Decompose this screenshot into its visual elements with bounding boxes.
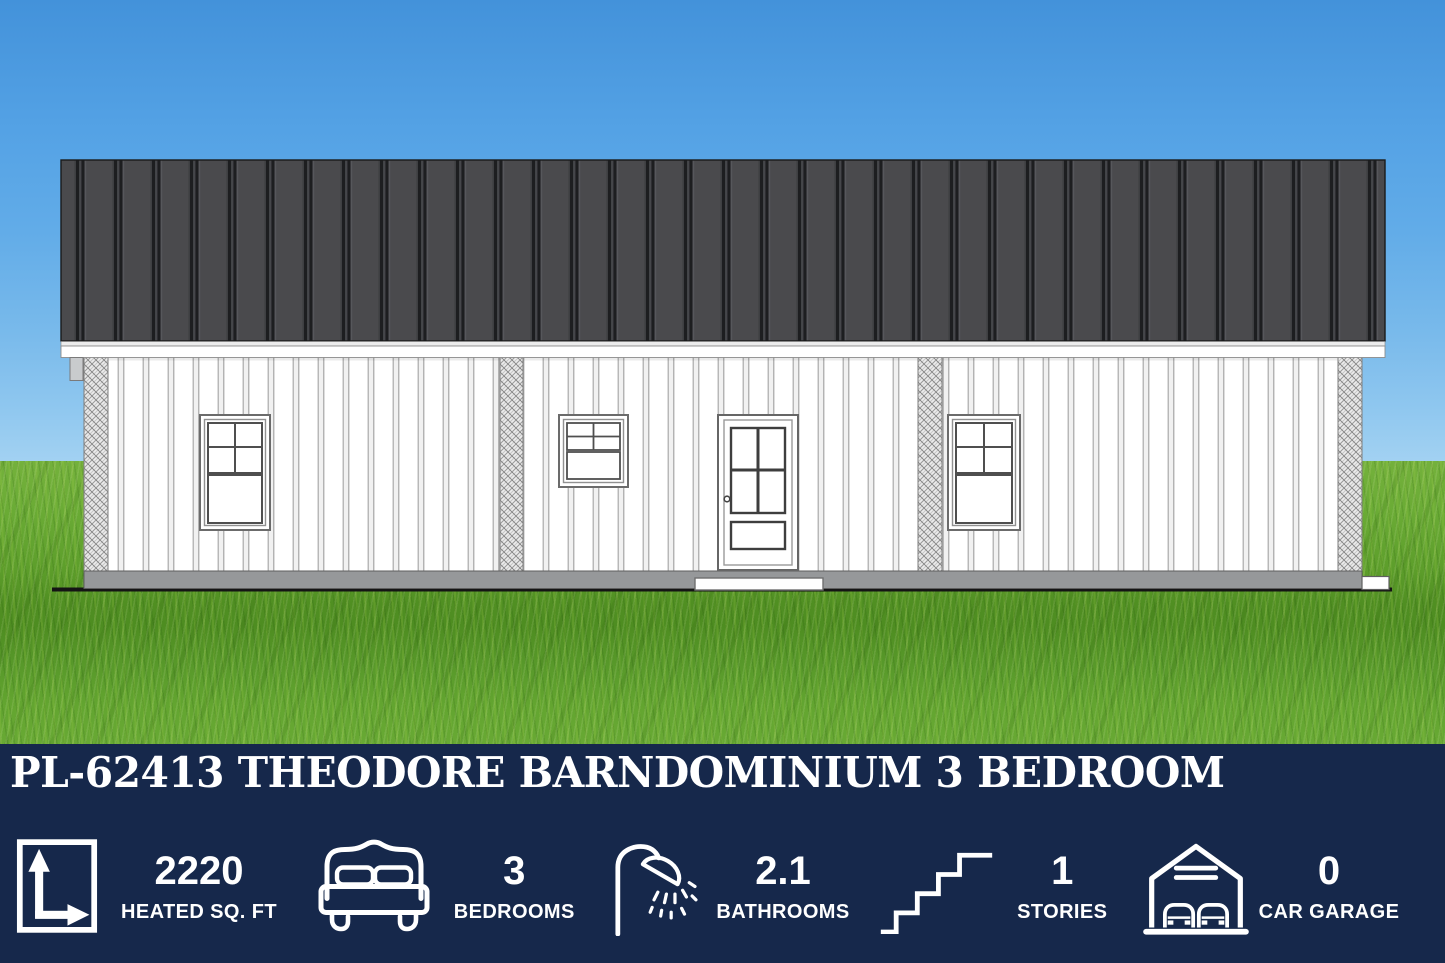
car-icon [1165,904,1193,927]
stat-text: 2.1 BATHROOMS [702,851,865,922]
stat-text: 3 BEDROOMS [435,851,593,922]
stat-text: 0 CAR GARAGE [1249,851,1409,922]
stats-row: 2220 HEATED SQ. FT 3 BEDROOMS [0,836,1445,936]
car-icon [1199,904,1227,927]
stat-heated-sqft: 2220 HEATED SQ. FT [16,838,300,934]
stat-label: HEATED SQ. FT [121,902,277,922]
stat-label: STORIES [1017,902,1107,922]
gutter-elbow [70,358,83,381]
plan-promo-image: PL-62413 THEODORE BARNDOMINIUM 3 BEDROOM… [0,0,1445,963]
stat-bedrooms: 3 BEDROOMS [313,838,593,934]
window-right [948,415,1020,530]
stat-label: BEDROOMS [454,902,575,922]
window-left [200,415,270,530]
stat-label: BATHROOMS [716,902,849,922]
stat-garage: 0 CAR GARAGE [1143,837,1409,936]
stairs-icon [878,838,995,934]
stat-text: 1 STORIES [995,851,1130,922]
stat-bathrooms: 2.1 BATHROOMS [607,836,865,936]
stat-text: 2220 HEATED SQ. FT [98,851,300,922]
metal-roof [61,160,1385,341]
window-middle [559,415,628,487]
page-title: PL-62413 THEODORE BARNDOMINIUM 3 BEDROOM [10,749,1224,797]
stat-value: 1 [1051,851,1073,891]
stat-value: 0 [1318,851,1340,891]
gutter-outlet [1362,577,1389,590]
shower-icon [607,836,702,936]
bed-icon [313,838,435,934]
stat-value: 2.1 [755,851,811,891]
dimensions-icon [16,838,98,934]
garage-icon [1143,837,1249,936]
stat-stories: 1 STORIES [878,838,1130,934]
stat-value: 2220 [155,851,244,891]
stat-label: CAR GARAGE [1259,902,1400,922]
stat-value: 3 [503,851,525,891]
info-banner: PL-62413 THEODORE BARNDOMINIUM 3 BEDROOM… [0,744,1445,963]
door-threshold [695,578,823,590]
entry-door [718,415,798,570]
